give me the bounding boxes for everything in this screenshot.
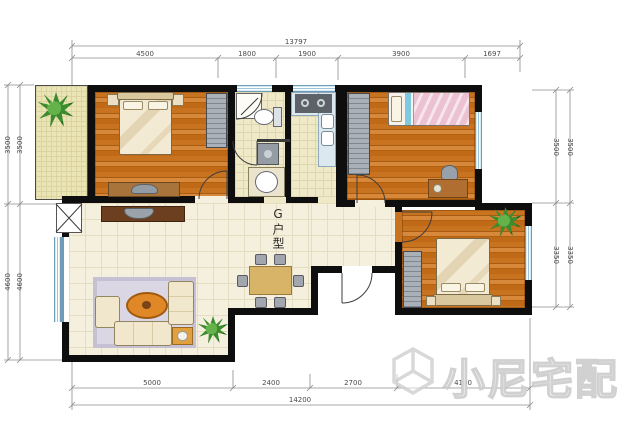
- dining-chair: [255, 297, 267, 308]
- unit-type-label: G户型: [270, 207, 287, 251]
- bed-headboard: [433, 294, 493, 306]
- watermark-logo-icon: [388, 346, 438, 396]
- dining-chair: [237, 275, 248, 287]
- wall: [336, 85, 347, 207]
- wall: [395, 308, 532, 315]
- desk-chair: [441, 165, 458, 180]
- chaise-sofa: [168, 281, 194, 325]
- watermark-text: 小尼宅配: [443, 346, 619, 407]
- kitchen-window: [293, 85, 335, 92]
- dim-left-inner-1: 3500: [16, 130, 24, 160]
- wall: [62, 322, 69, 362]
- wall: [228, 197, 264, 203]
- table-lamp-icon: [177, 331, 188, 341]
- bathroom-window: [237, 85, 272, 92]
- wall: [62, 355, 235, 362]
- wall: [475, 203, 532, 210]
- toilet-tank: [273, 107, 282, 127]
- door-threshold: [264, 197, 286, 203]
- pillow: [123, 101, 143, 110]
- dim-bottom-seg-3: 2700: [333, 379, 373, 387]
- dining-chair: [274, 297, 286, 308]
- door-threshold: [318, 197, 336, 203]
- dim-right-outer-2: 3350: [566, 240, 574, 270]
- pillow: [441, 283, 461, 292]
- sink-basin: [321, 114, 334, 129]
- nightstand: [426, 296, 436, 306]
- dim-bottom-seg-1: 5000: [132, 379, 172, 387]
- dim-top-seg-2: 1800: [227, 50, 267, 58]
- burner-icon: [317, 99, 325, 107]
- wall: [62, 196, 195, 203]
- floor-plan: 13797 4500 1800 1900 3900 1697 5000 2400…: [0, 0, 640, 445]
- dim-right-outer-1: 3500: [566, 132, 574, 162]
- toilet-bowl: [254, 109, 274, 125]
- pillow: [465, 283, 485, 292]
- dim-right-inner-1: 3500: [552, 132, 560, 162]
- wall: [395, 242, 402, 315]
- entry-door: [342, 273, 372, 303]
- dining-table: [249, 266, 292, 295]
- dim-left-outer-2: 4600: [4, 267, 12, 297]
- wall: [347, 200, 355, 207]
- washbasin: [255, 171, 278, 193]
- nightstand: [491, 296, 501, 306]
- dim-left-outer-1: 3500: [4, 130, 12, 160]
- door-threshold: [355, 200, 385, 207]
- dim-top-seg-3: 1900: [287, 50, 327, 58]
- sofa: [114, 321, 172, 346]
- wardrobe: [206, 93, 227, 148]
- dim-left-inner-2: 4600: [16, 267, 24, 297]
- bedroom2-window: [475, 112, 482, 169]
- dim-top-seg-4: 3900: [381, 50, 421, 58]
- door-threshold: [395, 212, 402, 242]
- wardrobe: [348, 93, 370, 175]
- living-room-window: [54, 237, 64, 322]
- wall: [88, 85, 95, 203]
- dim-top-overall: 13797: [276, 38, 316, 46]
- door-threshold: [195, 196, 228, 203]
- dim-right-inner-2: 3350: [552, 240, 560, 270]
- washer-door-icon: [264, 150, 272, 158]
- tv-on-dresser: [131, 184, 158, 194]
- desk-lamp-icon: [433, 184, 442, 193]
- wardrobe: [403, 251, 422, 308]
- dim-bottom-seg-2: 2400: [251, 379, 291, 387]
- bedroom3-window: [525, 226, 532, 280]
- pillow: [391, 96, 402, 122]
- wall: [291, 197, 318, 203]
- dim-bottom-overall: 14200: [280, 396, 320, 404]
- bathroom-partition-wall: [257, 139, 290, 142]
- wall: [88, 85, 482, 92]
- dim-top-seg-1: 4500: [125, 50, 165, 58]
- burner-icon: [301, 99, 309, 107]
- duct-shaft: [56, 203, 82, 233]
- sink-basin: [321, 131, 334, 146]
- dining-chair: [255, 254, 267, 265]
- wall: [228, 85, 235, 203]
- hallway-floor: [311, 203, 395, 266]
- coffee-table: [142, 301, 151, 309]
- wall: [228, 308, 235, 362]
- door-threshold: [342, 266, 372, 273]
- pink-blanket: [413, 93, 469, 125]
- bed-blanket-stripe: [405, 93, 411, 125]
- wall: [395, 203, 402, 212]
- dim-top-seg-5: 1697: [472, 50, 512, 58]
- wall: [372, 266, 402, 273]
- wall: [311, 266, 342, 273]
- dining-chair: [293, 275, 304, 287]
- wall: [228, 308, 318, 315]
- dining-chair: [274, 254, 286, 265]
- pillow: [148, 101, 168, 110]
